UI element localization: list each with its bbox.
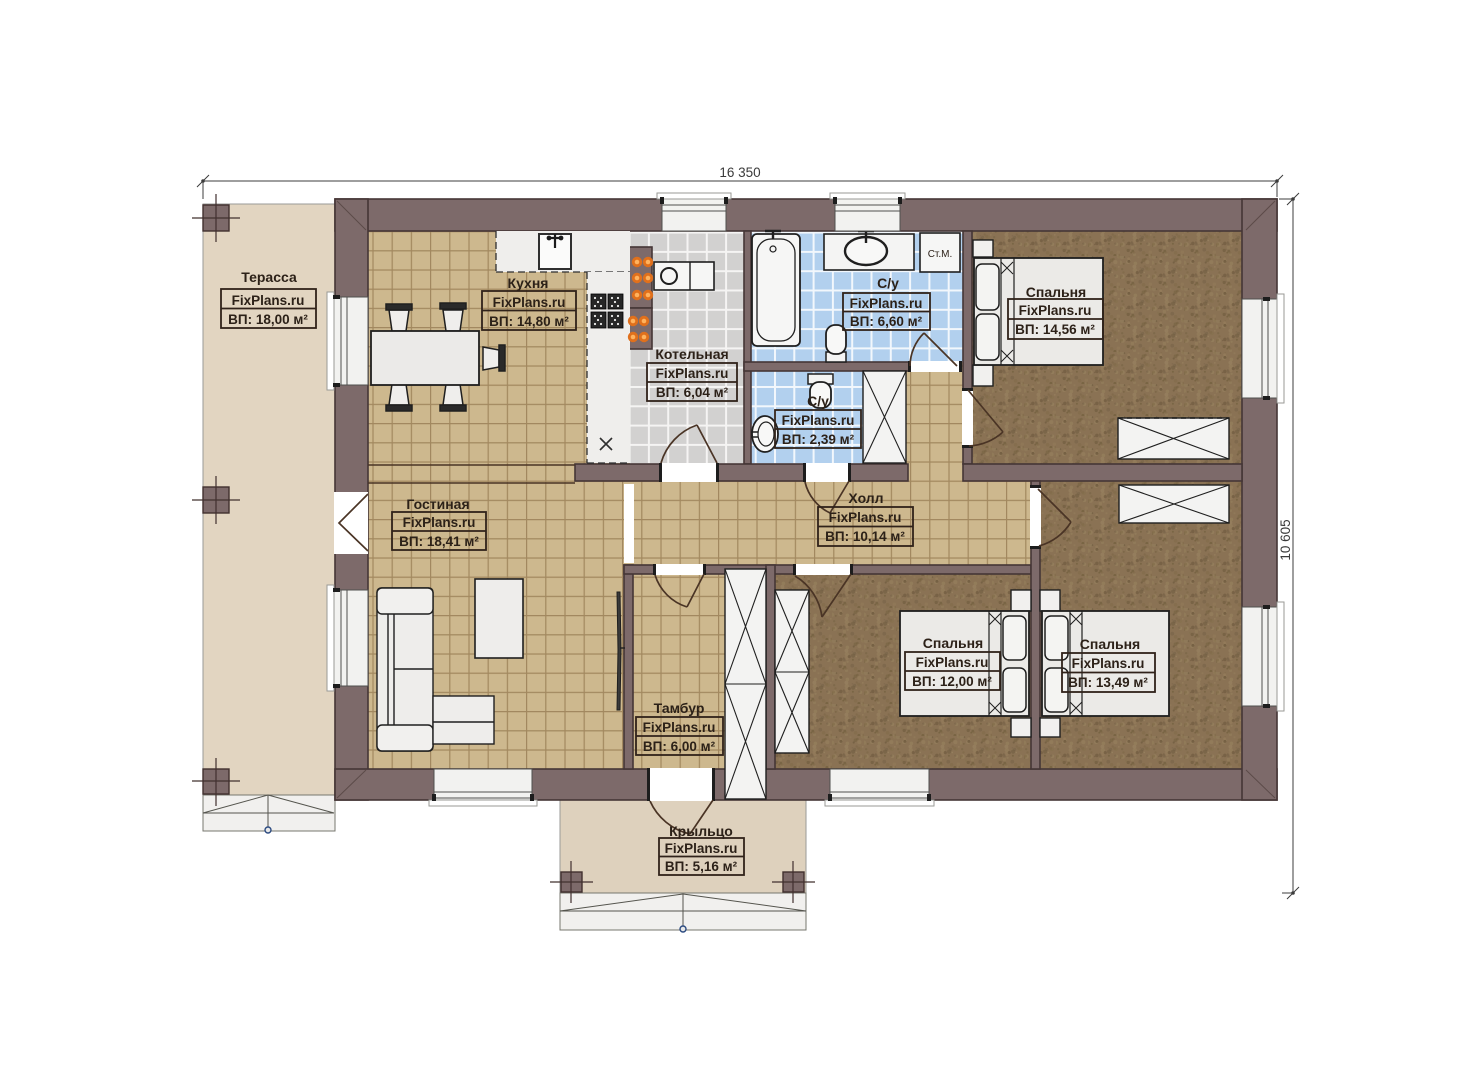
svg-text:FixPlans.ru: FixPlans.ru (643, 720, 716, 735)
svg-text:FixPlans.ru: FixPlans.ru (1019, 303, 1092, 318)
svg-text:Кухня: Кухня (508, 275, 549, 291)
svg-text:ВП: 6,04 м²: ВП: 6,04 м² (656, 385, 729, 400)
svg-text:FixPlans.ru: FixPlans.ru (916, 655, 989, 670)
svg-text:FixPlans.ru: FixPlans.ru (403, 515, 476, 530)
svg-text:ВП: 10,14 м²: ВП: 10,14 м² (825, 529, 905, 544)
svg-text:ВП: 6,00 м²: ВП: 6,00 м² (643, 739, 716, 754)
svg-text:FixPlans.ru: FixPlans.ru (850, 296, 923, 311)
svg-text:FixPlans.ru: FixPlans.ru (782, 413, 855, 428)
svg-text:Ст.М.: Ст.М. (928, 249, 953, 260)
svg-text:FixPlans.ru: FixPlans.ru (232, 293, 305, 308)
svg-text:Холл: Холл (848, 490, 883, 506)
svg-text:FixPlans.ru: FixPlans.ru (656, 366, 729, 381)
svg-text:ВП: 18,41 м²: ВП: 18,41 м² (399, 534, 479, 549)
svg-text:Гостиная: Гостиная (406, 496, 469, 512)
svg-text:Спальня: Спальня (1080, 636, 1140, 652)
svg-text:Спальня: Спальня (923, 635, 983, 651)
svg-text:Котельная: Котельная (655, 346, 728, 362)
svg-text:10 605: 10 605 (1278, 519, 1293, 560)
svg-text:FixPlans.ru: FixPlans.ru (829, 510, 902, 525)
svg-text:ВП: 14,56 м²: ВП: 14,56 м² (1015, 322, 1095, 337)
svg-text:16 350: 16 350 (719, 165, 760, 180)
svg-text:ВП: 6,60 м²: ВП: 6,60 м² (850, 314, 923, 329)
svg-text:ВП: 12,00 м²: ВП: 12,00 м² (912, 674, 992, 689)
svg-text:ВП: 13,49 м²: ВП: 13,49 м² (1068, 675, 1148, 690)
svg-text:ВП: 5,16 м²: ВП: 5,16 м² (665, 859, 738, 874)
svg-text:Тамбур: Тамбур (654, 700, 705, 716)
svg-text:FixPlans.ru: FixPlans.ru (1072, 656, 1145, 671)
svg-text:Спальня: Спальня (1026, 284, 1086, 300)
svg-text:FixPlans.ru: FixPlans.ru (493, 295, 566, 310)
svg-text:С/у: С/у (807, 393, 829, 409)
svg-text:Терасса: Терасса (241, 269, 297, 285)
svg-text:ВП: 18,00 м²: ВП: 18,00 м² (228, 312, 308, 327)
svg-text:FixPlans.ru: FixPlans.ru (665, 841, 738, 856)
svg-text:ВП: 2,39 м²: ВП: 2,39 м² (782, 432, 855, 447)
svg-text:С/у: С/у (877, 275, 899, 291)
svg-text:ВП: 14,80 м²: ВП: 14,80 м² (489, 314, 569, 329)
svg-text:Крыльцо: Крыльцо (669, 823, 733, 839)
